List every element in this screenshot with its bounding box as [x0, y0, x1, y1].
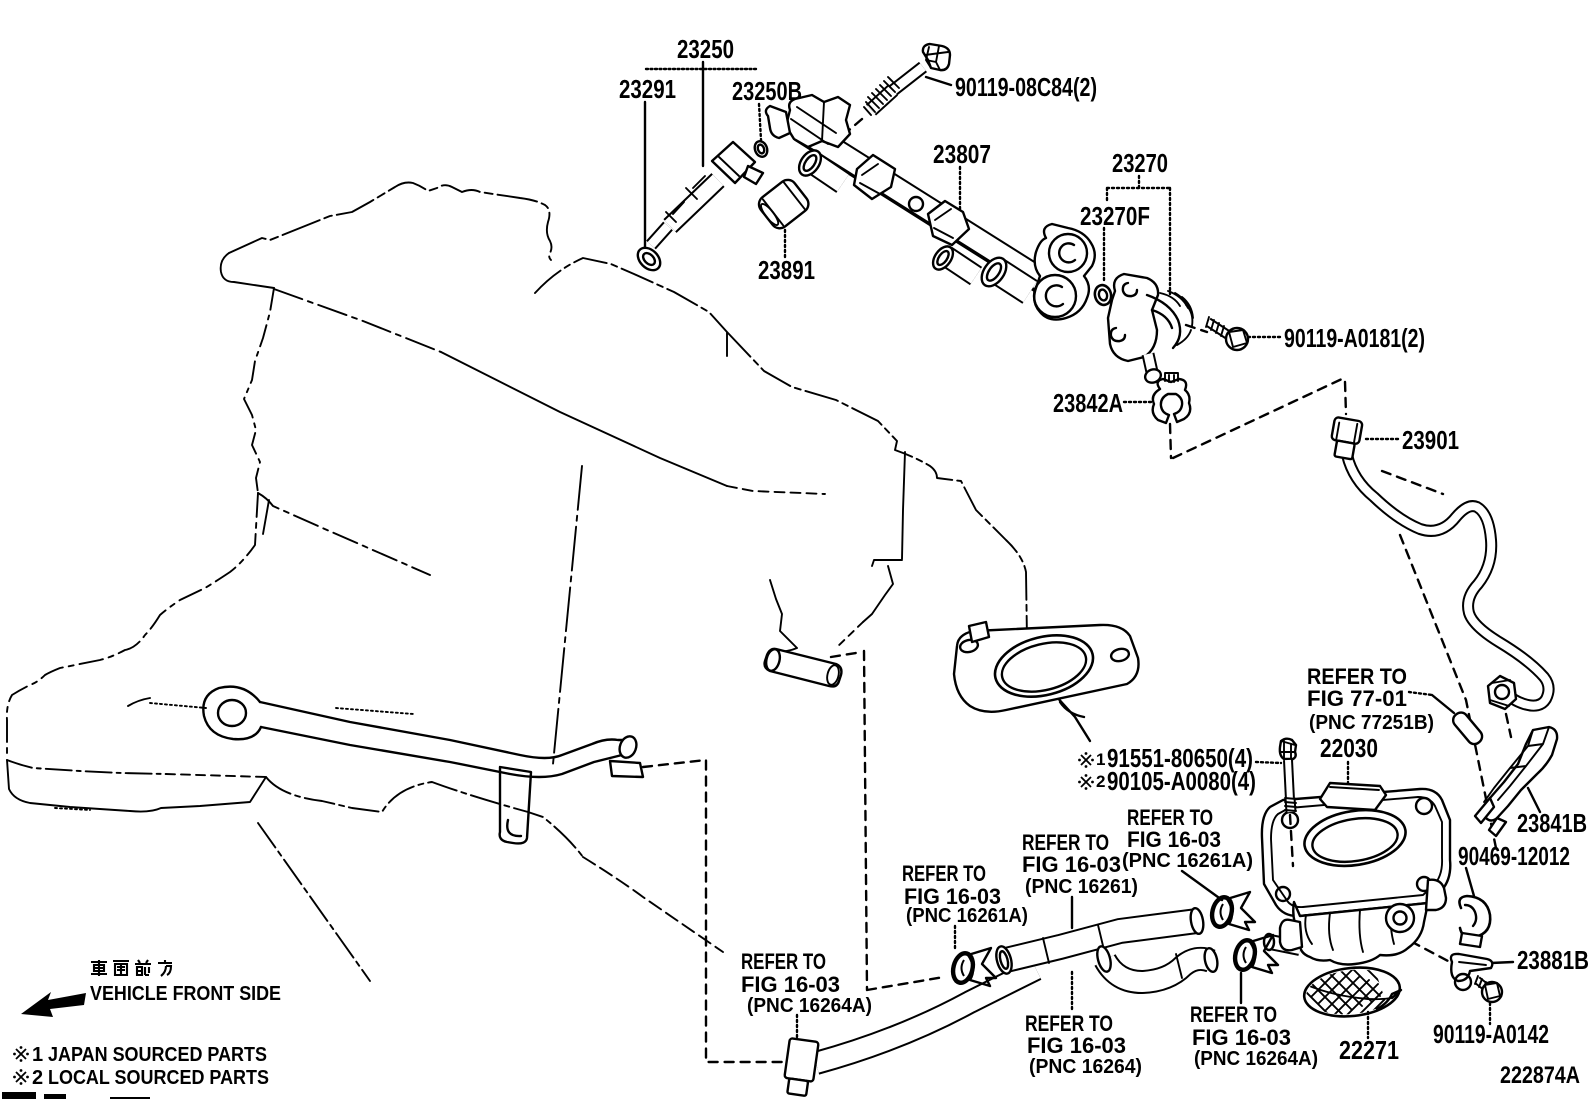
- svg-text:23901: 23901: [1402, 425, 1459, 455]
- svg-text:23250: 23250: [677, 34, 734, 64]
- svg-text:FIG 16-03: FIG 16-03: [1027, 1033, 1126, 1058]
- svg-text:(PNC 16261A): (PNC 16261A): [906, 905, 1028, 927]
- svg-text:FIG 77-01: FIG 77-01: [1307, 686, 1407, 711]
- svg-text:FIG 16-03: FIG 16-03: [741, 972, 840, 997]
- svg-text:23841B: 23841B: [1517, 808, 1587, 838]
- svg-text:23291: 23291: [619, 74, 676, 104]
- svg-text:23807: 23807: [933, 139, 991, 169]
- svg-text:22030: 22030: [1320, 733, 1378, 763]
- svg-text:2: 2: [1096, 772, 1105, 791]
- svg-text:VEHICLE FRONT SIDE: VEHICLE FRONT SIDE: [90, 983, 281, 1005]
- svg-text:23881B: 23881B: [1517, 945, 1589, 975]
- svg-text:FIG 16-03: FIG 16-03: [1192, 1025, 1291, 1050]
- svg-text:(PNC 16261): (PNC 16261): [1025, 876, 1138, 898]
- svg-text:FIG 16-03: FIG 16-03: [1022, 852, 1121, 877]
- svg-text:(PNC 16264): (PNC 16264): [1029, 1056, 1142, 1078]
- svg-text:1: 1: [32, 1044, 43, 1066]
- svg-text:FIG 16-03: FIG 16-03: [1127, 827, 1221, 852]
- svg-text:90469-12012: 90469-12012: [1458, 841, 1570, 871]
- svg-text:23842A: 23842A: [1053, 388, 1123, 418]
- svg-text:REFER TO: REFER TO: [741, 949, 826, 974]
- svg-text:222874A: 222874A: [1500, 1062, 1580, 1089]
- svg-text:REFER TO: REFER TO: [1190, 1002, 1277, 1027]
- svg-text:23270F: 23270F: [1080, 201, 1150, 231]
- svg-text:2: 2: [32, 1067, 43, 1089]
- svg-text:LOCAL SOURCED PARTS: LOCAL SOURCED PARTS: [48, 1067, 269, 1089]
- svg-text:JAPAN SOURCED PARTS: JAPAN SOURCED PARTS: [48, 1044, 267, 1066]
- svg-text:23270: 23270: [1112, 148, 1168, 178]
- svg-text:(PNC 16264A): (PNC 16264A): [747, 995, 872, 1017]
- svg-text:90105-A0080(4): 90105-A0080(4): [1107, 766, 1256, 796]
- svg-text:1: 1: [1096, 750, 1105, 769]
- svg-text:(PNC 16261A): (PNC 16261A): [1122, 850, 1253, 872]
- svg-text:22271: 22271: [1339, 1035, 1399, 1065]
- svg-text:23891: 23891: [758, 255, 815, 285]
- svg-text:REFER TO: REFER TO: [902, 861, 986, 886]
- svg-text:90119-A0181(2): 90119-A0181(2): [1284, 323, 1425, 353]
- svg-text:(PNC 16264A): (PNC 16264A): [1194, 1048, 1318, 1070]
- svg-text:90119-08C84(2): 90119-08C84(2): [955, 72, 1097, 102]
- svg-text:(PNC 77251B): (PNC 77251B): [1309, 712, 1434, 734]
